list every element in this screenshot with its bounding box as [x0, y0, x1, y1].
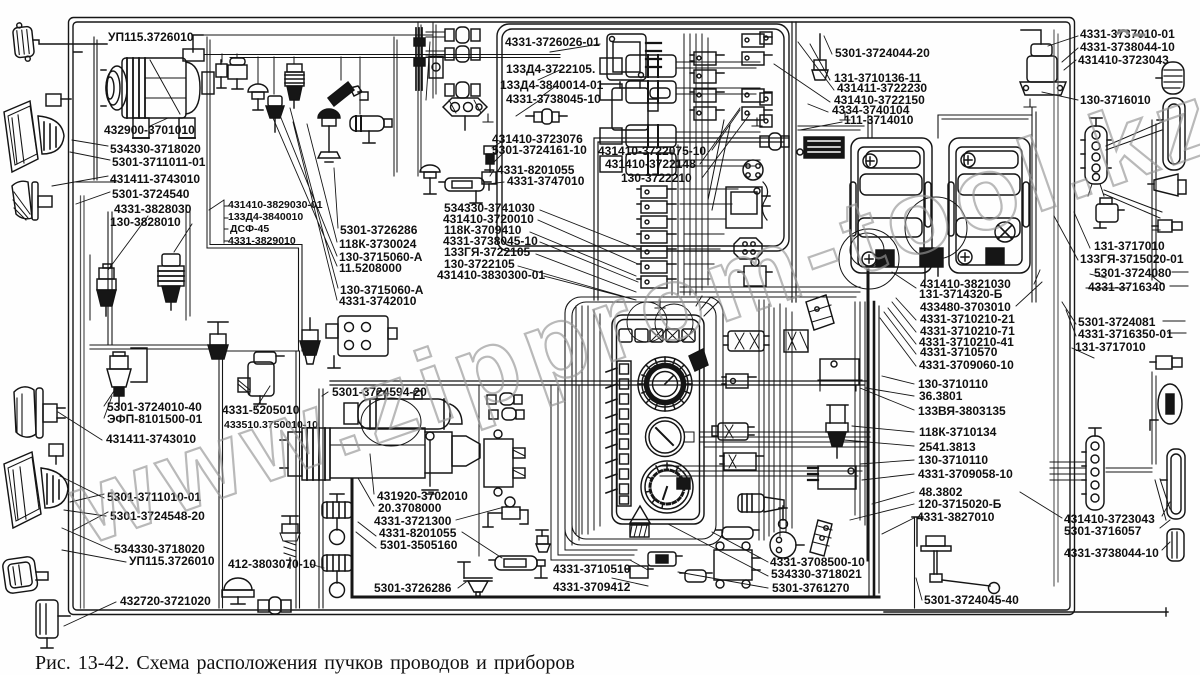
svg-text:4331-3738045-10: 4331-3738045-10	[506, 92, 601, 106]
svg-text:412-3803070-10: 412-3803070-10	[228, 557, 316, 571]
svg-text:5301-3724080: 5301-3724080	[1094, 266, 1172, 280]
svg-text:4331-3738044-10: 4331-3738044-10	[1064, 546, 1159, 560]
svg-text:11.5208000: 11.5208000	[339, 261, 402, 275]
svg-text:431410-3830300-01: 431410-3830300-01	[437, 268, 545, 282]
svg-text:4331-3716340: 4331-3716340	[1088, 280, 1166, 294]
svg-text:133Д4-3722105.: 133Д4-3722105.	[506, 62, 595, 76]
svg-text:431410-3722148: 431410-3722148	[605, 157, 696, 171]
svg-text:4331-3710570: 4331-3710570	[920, 345, 998, 359]
svg-text:2541.3813: 2541.3813	[919, 440, 976, 454]
svg-text:431410-3829030-01: 431410-3829030-01	[228, 199, 323, 211]
svg-text:5301-3724045-40: 5301-3724045-40	[924, 593, 1019, 607]
svg-text:131-3717010: 131-3717010	[1075, 340, 1146, 354]
svg-text:5301-3724540: 5301-3724540	[112, 187, 190, 201]
svg-text:4331-3747010: 4331-3747010	[507, 174, 585, 188]
svg-text:431411-3743010: 431411-3743010	[110, 172, 200, 186]
svg-text:4331-3716350-01: 4331-3716350-01	[1078, 327, 1173, 341]
svg-text:5301-3505160: 5301-3505160	[380, 538, 458, 552]
svg-text:4331-3742010: 4331-3742010	[339, 294, 417, 308]
svg-text:4331-3710510: 4331-3710510	[553, 562, 631, 576]
svg-text:120-3715020-Б: 120-3715020-Б	[918, 497, 1002, 511]
svg-text:534330-3718021: 534330-3718021	[771, 567, 862, 581]
svg-text:118К-3710134: 118К-3710134	[919, 425, 997, 439]
svg-text:4331-3709060-10: 4331-3709060-10	[919, 358, 1014, 372]
svg-text:131-3717010: 131-3717010	[1094, 239, 1165, 253]
svg-text:432900-3701010: 432900-3701010	[104, 123, 195, 137]
svg-text:111-3714010: 111-3714010	[844, 113, 914, 127]
svg-text:УП115.3726010: УП115.3726010	[129, 554, 215, 568]
svg-text:5301-3726286: 5301-3726286	[340, 223, 418, 237]
svg-text:534330-3718020: 534330-3718020	[110, 142, 201, 156]
svg-text:131-3714320-Б: 131-3714320-Б	[919, 287, 1003, 301]
svg-text:4331-3738044-10: 4331-3738044-10	[1080, 40, 1175, 54]
svg-text:133ГЯ-3715020-01: 133ГЯ-3715020-01	[1080, 252, 1184, 266]
svg-text:36.3801: 36.3801	[919, 389, 963, 403]
svg-text:20.3708000: 20.3708000	[378, 501, 442, 515]
svg-text:118К-3730024: 118К-3730024	[339, 237, 417, 251]
svg-text:4331-3827010: 4331-3827010	[917, 510, 995, 524]
svg-text:5301-3711011-01: 5301-3711011-01	[112, 155, 206, 169]
svg-text:4331-3726026-01: 4331-3726026-01	[505, 35, 600, 49]
svg-text:ДСФ-45: ДСФ-45	[230, 223, 269, 235]
svg-text:130-3710110: 130-3710110	[918, 453, 988, 467]
svg-text:5301-3716057: 5301-3716057	[1064, 524, 1142, 538]
svg-text:133Д4-3840010: 133Д4-3840010	[228, 211, 303, 223]
svg-text:4331-3829010: 4331-3829010	[228, 235, 296, 247]
svg-text:УП115.3726010: УП115.3726010	[108, 30, 194, 44]
svg-text:432720-3721020: 432720-3721020	[120, 594, 211, 608]
svg-text:431410-3723043: 431410-3723043	[1078, 53, 1169, 67]
svg-text:4331-3709058-10: 4331-3709058-10	[918, 467, 1013, 481]
svg-text:431410-3722075-10: 431410-3722075-10	[598, 144, 706, 158]
svg-text:4331-3709412: 4331-3709412	[553, 580, 631, 594]
svg-text:5301-3724044-20: 5301-3724044-20	[835, 46, 930, 60]
svg-text:133Д4-3840014-01: 133Д4-3840014-01	[500, 78, 604, 92]
svg-text:133ВЯ-3803135: 133ВЯ-3803135	[918, 404, 1006, 418]
svg-text:4331-3828030: 4331-3828030	[114, 202, 192, 216]
svg-text:5301-3724161-10: 5301-3724161-10	[492, 143, 587, 157]
svg-text:5301-3726286: 5301-3726286	[374, 581, 452, 595]
svg-text:Рис. 13-42. Схема расположения: Рис. 13-42. Схема расположения пучков пр…	[35, 652, 575, 674]
svg-text:130-3722210: 130-3722210	[621, 171, 692, 185]
svg-text:130-3828010: 130-3828010	[110, 215, 181, 229]
svg-text:5301-3761270: 5301-3761270	[772, 581, 850, 595]
